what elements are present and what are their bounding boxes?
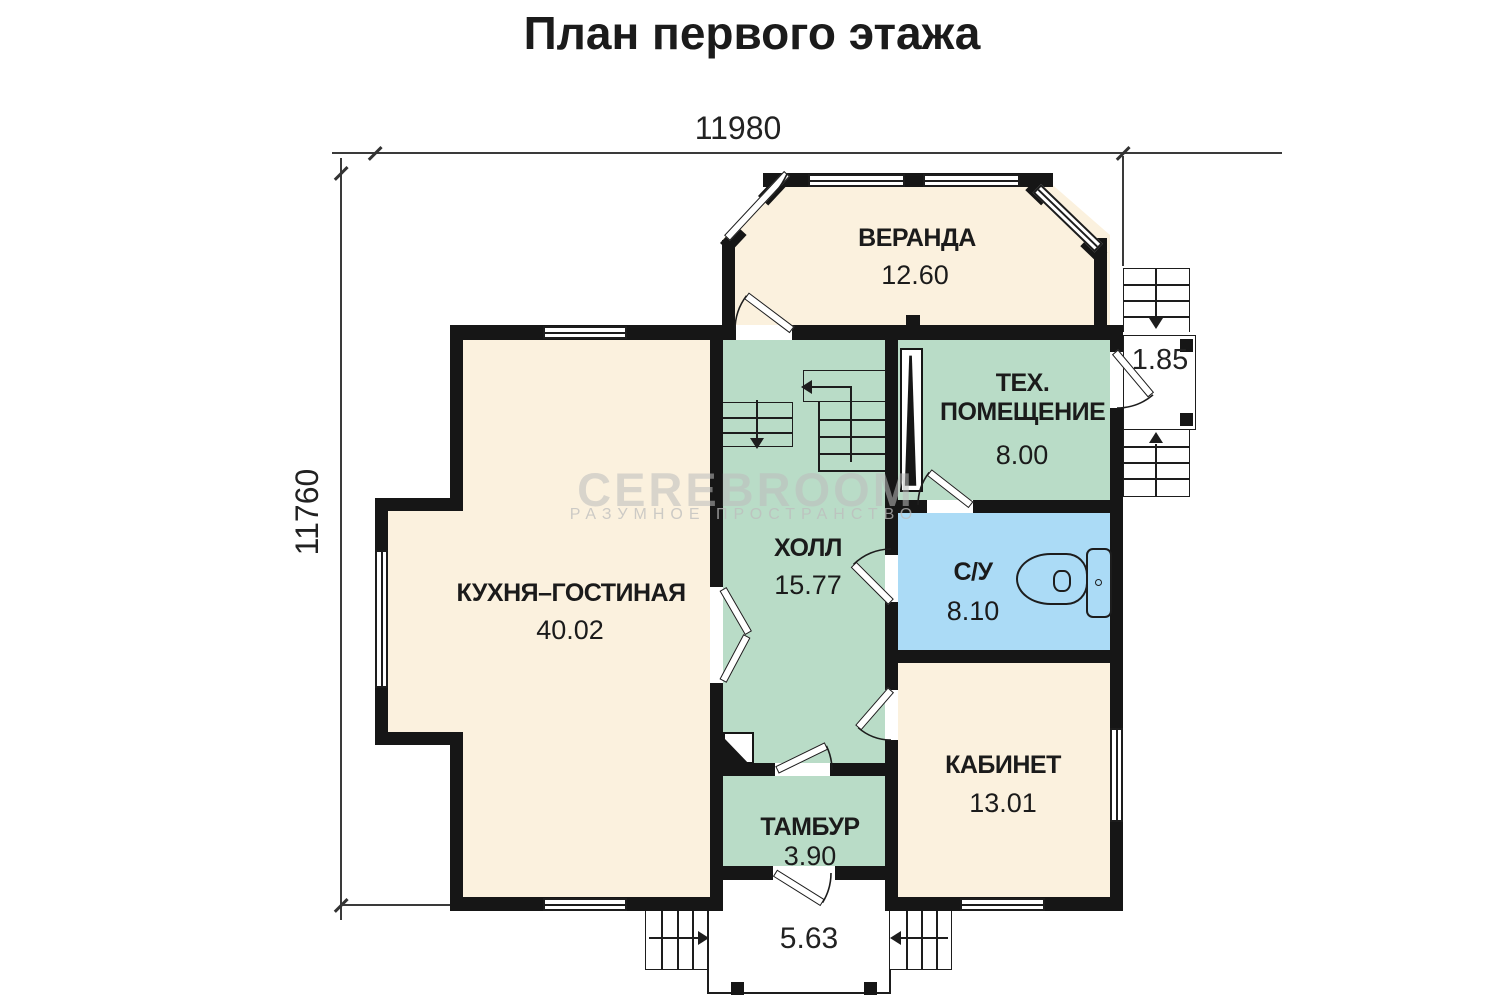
wall — [375, 498, 463, 511]
room-hall-area: 15.77 — [774, 570, 842, 601]
room-wc-area: 8.10 — [947, 596, 1000, 627]
room-hall-name: ХОЛЛ — [774, 534, 842, 563]
stair-tread — [692, 908, 694, 970]
page-title: План первого этажа — [524, 6, 981, 60]
dimension-line-left — [340, 158, 342, 920]
stair-direction-arrow — [1149, 318, 1163, 329]
stair-tread — [677, 908, 679, 970]
wall — [885, 325, 898, 911]
stair-tread — [723, 417, 793, 419]
stair-direction-arrow — [750, 438, 764, 449]
stair-direction-line — [756, 400, 758, 440]
wall-veranda-left — [722, 240, 735, 332]
wall-stub — [906, 315, 920, 328]
wall — [885, 650, 1123, 663]
room-tech-area: 8.00 — [996, 440, 1049, 471]
wall — [885, 500, 1123, 513]
stair-tread — [936, 908, 938, 970]
dimension-line-top — [332, 152, 1282, 154]
door-opening — [710, 587, 723, 683]
stair-direction-arrow — [890, 931, 901, 945]
stair-direction-arrow — [801, 380, 812, 394]
stair-tread — [818, 419, 886, 421]
room-kitchen-name: КУХНЯ–ГОСТИНАЯ — [456, 579, 685, 608]
watermark-tagline: РАЗУМНОЕ ПРОСТРАНСТВО — [570, 506, 918, 524]
wall — [450, 732, 463, 911]
room-tech-name: ТЕХ. ПОМЕЩЕНИЕ — [940, 369, 1105, 427]
porch-post — [1180, 413, 1193, 426]
toilet-bowl — [1016, 553, 1088, 605]
toilet-bowl-inner — [1053, 570, 1071, 592]
stair-direction-arrow — [1149, 432, 1163, 443]
room-cabinet-name: КАБИНЕТ — [945, 751, 1061, 780]
window — [923, 174, 1020, 187]
stair-tread — [921, 908, 923, 970]
window — [543, 898, 627, 911]
stair-tread — [818, 453, 886, 455]
wall — [1110, 325, 1123, 911]
stair-direction-line — [850, 386, 852, 462]
stair-tread — [661, 908, 663, 970]
window — [1110, 728, 1123, 822]
stair-tread — [818, 436, 886, 438]
room-cabinet-area: 13.01 — [969, 788, 1037, 819]
stair-direction-line — [896, 937, 948, 939]
stair-tread — [723, 432, 793, 434]
dimension-entrance-porch: 5.63 — [759, 922, 859, 956]
room-veranda-name: ВЕРАНДА — [858, 224, 976, 253]
stair-direction-line — [649, 937, 701, 939]
floor-plan: План первого этажа 11980 11760 CEREBROOM… — [0, 0, 1500, 1000]
room-veranda-area: 12.60 — [881, 260, 949, 291]
stair-direction-arrow — [698, 931, 709, 945]
dimension-width-total: 11980 — [688, 110, 788, 147]
room-wc-name: С/У — [953, 558, 992, 587]
window — [960, 898, 1045, 911]
porch-post — [864, 982, 877, 995]
window — [375, 550, 388, 688]
extension-line — [1122, 156, 1124, 266]
entrance-porch-outline — [707, 908, 709, 993]
room-tech-fill — [898, 340, 1110, 513]
dimension-right-porch: 1.85 — [1128, 344, 1192, 377]
toilet-flush-button — [1095, 579, 1102, 586]
window — [808, 174, 905, 187]
stair-direction-line — [1155, 444, 1157, 497]
dimension-height-total: 11760 — [289, 462, 325, 562]
room-tambour-area: 3.90 — [784, 841, 837, 872]
ventilation-wedge — [725, 734, 752, 762]
extension-line — [341, 904, 453, 906]
stair-tread — [906, 908, 908, 970]
stair-direction-line — [1155, 268, 1157, 320]
ventilation-icon — [723, 732, 754, 764]
wall — [450, 325, 463, 511]
window — [543, 326, 627, 339]
room-tambour-name: ТАМБУР — [760, 813, 859, 842]
porch-post — [731, 982, 744, 995]
room-kitchen-area: 40.02 — [536, 615, 604, 646]
stair-direction-line — [812, 386, 852, 388]
